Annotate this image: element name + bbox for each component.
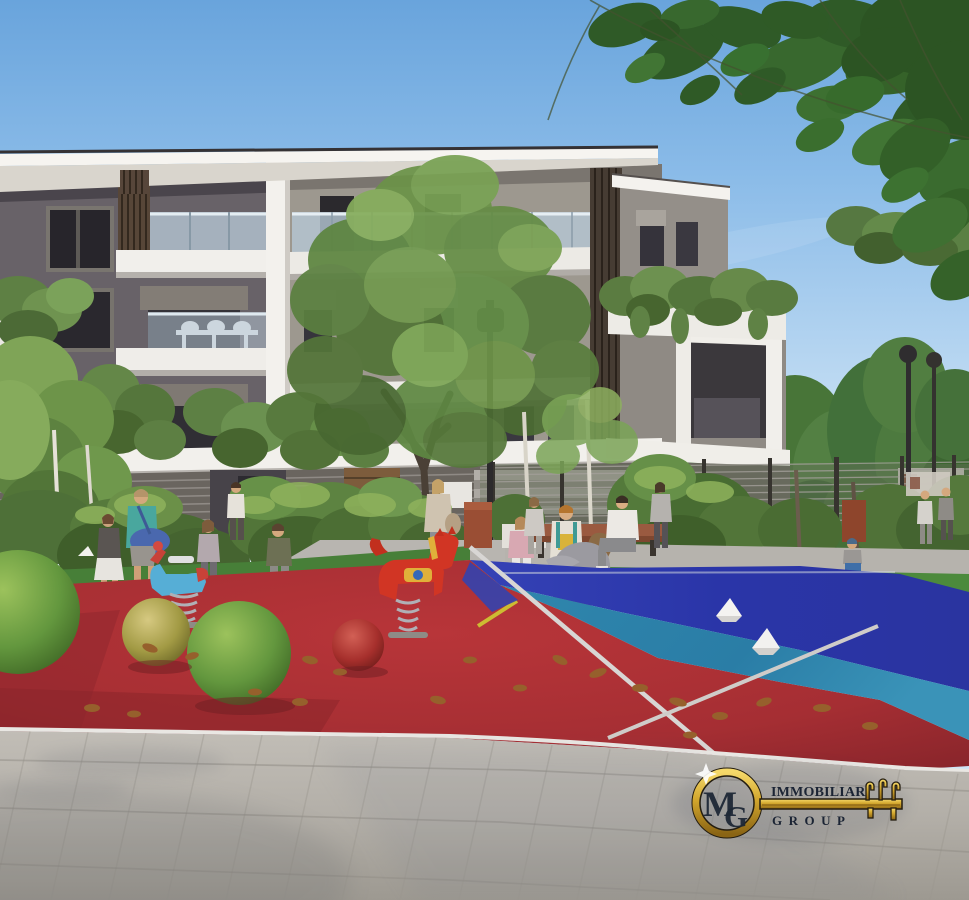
svg-text:G: G — [724, 799, 748, 834]
svg-text:GROUP: GROUP — [772, 813, 851, 828]
svg-text:IMMOBILIAR: IMMOBILIAR — [771, 785, 866, 800]
